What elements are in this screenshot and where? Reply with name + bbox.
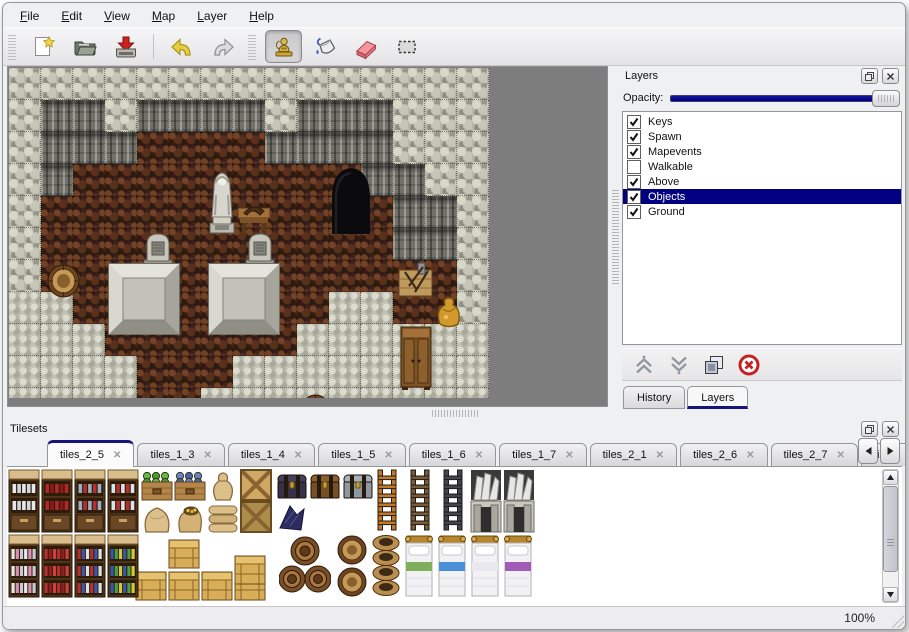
map-tile[interactable] [9, 228, 41, 260]
map-tile[interactable] [41, 324, 73, 356]
produce-tile[interactable] [141, 469, 173, 504]
layer-row-mapevents[interactable]: Mapevents [623, 144, 901, 159]
wardrobe-object[interactable] [399, 325, 433, 391]
map-tile[interactable] [457, 260, 489, 292]
scroll-up-button[interactable] [883, 470, 898, 485]
map-tile[interactable] [457, 388, 489, 398]
map-tile[interactable] [169, 68, 201, 100]
toolbar [3, 27, 905, 66]
redo-button[interactable] [204, 30, 241, 63]
arrow-left-icon [864, 446, 873, 456]
map-tile[interactable] [41, 132, 73, 164]
close-panel-button[interactable] [882, 421, 899, 437]
map-tile[interactable] [41, 228, 73, 260]
crate-with-tools [397, 260, 434, 298]
scroll-thumb[interactable] [883, 486, 898, 572]
cabinet-tile[interactable] [74, 469, 106, 536]
cabinet-tile [41, 469, 73, 533]
map-tile[interactable] [169, 132, 201, 164]
tab-close-icon[interactable]: ✕ [384, 450, 392, 461]
map-canvas[interactable] [9, 68, 490, 398]
cabinet-tile[interactable] [107, 469, 139, 536]
bed-tile [403, 534, 435, 598]
map-tile[interactable] [297, 356, 329, 388]
bed-tile[interactable] [502, 534, 534, 601]
map-tile[interactable] [329, 68, 361, 100]
map-tile[interactable] [233, 132, 265, 164]
tileset-tab-tiles_2_7[interactable]: tiles_2_7✕ [771, 443, 858, 466]
tab-label: tiles_1_7 [512, 449, 556, 461]
tab-close-icon[interactable]: ✕ [746, 450, 754, 461]
map-tile[interactable] [265, 388, 297, 398]
gate-tile[interactable] [470, 469, 502, 536]
map-tile[interactable] [9, 68, 41, 100]
map-tile[interactable] [329, 132, 361, 164]
tileset-tab-tiles_1_6[interactable]: tiles_1_6✕ [409, 443, 496, 466]
map-tile[interactable] [73, 196, 105, 228]
crate-tile [168, 569, 200, 601]
map-tile[interactable] [201, 356, 233, 388]
check-icon [628, 131, 640, 143]
map-tile[interactable] [73, 132, 105, 164]
map-tile[interactable] [73, 164, 105, 196]
bookshelf-tile [107, 534, 139, 598]
map-tile[interactable] [41, 388, 73, 398]
check-icon [628, 176, 640, 188]
arrow-right-icon [886, 446, 895, 456]
map-tile[interactable] [329, 388, 361, 398]
map-tile[interactable] [73, 228, 105, 260]
map-tile[interactable] [361, 324, 393, 356]
eraser-button[interactable] [347, 30, 384, 63]
undo-icon [169, 34, 195, 60]
tab-label: Layers [701, 392, 734, 404]
menu-map[interactable]: Map [141, 5, 186, 26]
shelf-tile[interactable] [107, 534, 139, 601]
map-tile[interactable] [233, 68, 265, 100]
map-tile[interactable] [265, 68, 297, 100]
map-tile[interactable] [137, 100, 169, 132]
bed-tile[interactable] [403, 534, 435, 601]
map-tile[interactable] [265, 356, 297, 388]
produce-crate-tile [141, 469, 173, 501]
layer-checkbox[interactable] [627, 145, 641, 159]
map-tile[interactable] [425, 228, 457, 260]
float-icon [864, 71, 875, 82]
cave-object[interactable] [329, 164, 373, 234]
map-viewport[interactable] [7, 66, 608, 407]
tab-close-icon[interactable]: ✕ [837, 450, 845, 461]
map-tile[interactable] [297, 132, 329, 164]
produce-crate-tile [174, 469, 206, 501]
bed-tile [436, 534, 468, 598]
map-tile[interactable] [73, 356, 105, 388]
cabinet-tile [107, 469, 139, 533]
tileset-scrollbar[interactable] [882, 469, 899, 603]
map-tile[interactable] [361, 132, 393, 164]
x-crate-tile [240, 469, 272, 501]
fill-button[interactable] [306, 30, 343, 63]
opacity-slider[interactable] [670, 89, 900, 106]
new-file-button[interactable] [25, 30, 62, 63]
map-tile[interactable] [457, 100, 489, 132]
opacity-slider-handle[interactable] [872, 90, 900, 107]
stone-gate-tile [503, 469, 535, 533]
tileset-tab-tiles_1_4[interactable]: tiles_1_4✕ [228, 443, 315, 466]
map-tile[interactable] [201, 132, 233, 164]
layer-row-keys[interactable]: Keys [623, 114, 901, 129]
map-tile[interactable] [425, 196, 457, 228]
sackpile-tile[interactable] [207, 501, 239, 536]
map-tile[interactable] [105, 132, 137, 164]
map-tile[interactable] [393, 132, 425, 164]
map-tile[interactable] [105, 356, 137, 388]
menu-layer[interactable]: Layer [186, 5, 238, 26]
tab-close-icon[interactable]: ✕ [656, 450, 664, 461]
ladder-tile[interactable] [437, 469, 469, 534]
map-tile[interactable] [425, 68, 457, 100]
barreltop-object[interactable] [300, 394, 331, 398]
map-tile[interactable] [73, 324, 105, 356]
open-button[interactable] [66, 30, 103, 63]
cabinet-tile[interactable] [8, 469, 40, 536]
ladder-tile [404, 469, 436, 531]
layer-checkbox[interactable] [627, 160, 641, 174]
crate-tile [135, 569, 167, 601]
crate-tile[interactable] [168, 537, 200, 572]
tab-close-icon[interactable]: ✕ [565, 450, 573, 461]
layer-row-ground[interactable]: Ground [623, 204, 901, 219]
tab-close-icon[interactable]: ✕ [294, 450, 302, 461]
layer-row-spawn[interactable]: Spawn [623, 129, 901, 144]
opacity-label: Opacity: [623, 92, 663, 104]
barrel [47, 264, 80, 298]
save-button[interactable] [107, 30, 144, 63]
map-tile[interactable] [297, 260, 329, 292]
tileset-tab-tiles_1_5[interactable]: tiles_1_5✕ [318, 443, 405, 466]
tileset-tab-tiles_1_7[interactable]: tiles_1_7✕ [499, 443, 586, 466]
map-tile[interactable] [137, 68, 169, 100]
map-tile[interactable] [265, 132, 297, 164]
undo-button[interactable] [163, 30, 200, 63]
map-tile[interactable] [297, 292, 329, 324]
tombstone-object[interactable] [141, 230, 175, 266]
resize-grip[interactable] [887, 611, 904, 628]
stone-platform [108, 263, 180, 335]
map-tile[interactable] [41, 164, 73, 196]
tab-close-icon[interactable]: ✕ [113, 450, 121, 461]
barreltop-tile[interactable] [337, 535, 367, 568]
tab-label: History [637, 392, 671, 404]
map-tile[interactable] [361, 100, 393, 132]
save-icon [113, 34, 139, 60]
map-tile[interactable] [265, 100, 297, 132]
map-tile[interactable] [233, 356, 265, 388]
map-tile[interactable] [9, 132, 41, 164]
map-tile[interactable] [137, 164, 169, 196]
toolbar-drag-handle[interactable] [8, 33, 16, 60]
map-tile[interactable] [105, 388, 137, 398]
map-tile[interactable] [105, 164, 137, 196]
duplicate-layer-button[interactable] [701, 352, 727, 378]
fill-icon [312, 34, 338, 60]
scroll-tabs-right-button[interactable] [880, 438, 900, 464]
delete-layer-icon [737, 353, 761, 377]
map-tile[interactable] [393, 164, 425, 196]
map-tile[interactable] [169, 100, 201, 132]
sackbig-tile[interactable] [141, 501, 173, 536]
barreltop-object[interactable] [47, 264, 80, 298]
map-tile[interactable] [457, 164, 489, 196]
chest-tile [309, 469, 341, 501]
redo-icon [210, 34, 236, 60]
tab-label: tiles_2_5 [60, 449, 104, 461]
new-file-icon [31, 34, 57, 60]
layer-checkbox[interactable] [627, 115, 641, 129]
delete-layer-button[interactable] [736, 352, 762, 378]
eraser-icon [353, 34, 379, 60]
select-button[interactable] [388, 30, 425, 63]
float-panel-button[interactable] [861, 421, 878, 437]
crate-tile[interactable] [135, 569, 167, 604]
map-tile[interactable] [457, 196, 489, 228]
barrel-stack-tile [279, 534, 331, 596]
layer-name: Keys [648, 116, 672, 128]
tombstone [243, 230, 277, 266]
layer-checkbox[interactable] [627, 130, 641, 144]
chest-tile [342, 469, 374, 501]
bookshelf-tile [8, 534, 40, 598]
menu-view[interactable]: View [93, 5, 141, 26]
pots-tile[interactable] [371, 534, 401, 600]
map-tile[interactable] [425, 100, 457, 132]
map-tile[interactable] [41, 100, 73, 132]
map-tile[interactable] [9, 292, 41, 324]
map-tile[interactable] [233, 388, 265, 398]
cabinet-tile [8, 469, 40, 533]
sack-tile[interactable] [207, 469, 239, 504]
chest-tile[interactable] [276, 469, 308, 504]
map-tile[interactable] [201, 68, 233, 100]
map-tile[interactable] [169, 164, 201, 196]
cratetools-object[interactable] [397, 260, 434, 298]
menu-file[interactable]: File [9, 5, 50, 26]
tab-close-icon[interactable]: ✕ [475, 450, 483, 461]
tileset-tab-tiles_1_3[interactable]: tiles_1_3✕ [137, 443, 224, 466]
bookshelf-tile [74, 534, 106, 598]
tab-layers[interactable]: Layers [687, 386, 748, 409]
map-tile[interactable] [105, 228, 137, 260]
produce-tile[interactable] [174, 469, 206, 504]
map-tile[interactable] [393, 68, 425, 100]
map-tile[interactable] [105, 68, 137, 100]
map-tile[interactable] [41, 68, 73, 100]
scroll-tabs-left-button[interactable] [858, 438, 878, 464]
map-tile[interactable] [457, 132, 489, 164]
map-tile[interactable] [393, 100, 425, 132]
duplicate-layer-icon [702, 353, 726, 377]
zoom-level: 100% [844, 611, 875, 625]
tilesets-panel-header: Tilesets [7, 419, 902, 439]
map-tile[interactable] [361, 388, 393, 398]
check-icon [628, 116, 640, 128]
map-tile[interactable] [201, 388, 233, 398]
map-tile[interactable] [233, 100, 265, 132]
map-tile[interactable] [329, 356, 361, 388]
arrow-down-icon [886, 590, 895, 599]
map-tile[interactable] [137, 356, 169, 388]
crate-tile [168, 537, 200, 569]
tab-history[interactable]: History [623, 386, 685, 409]
debris-tile[interactable] [276, 501, 308, 536]
layer-name: Ground [648, 206, 685, 218]
cratex-tile[interactable] [240, 469, 272, 504]
map-tile[interactable] [329, 292, 361, 324]
menu-edit[interactable]: Edit [50, 5, 93, 26]
layer-checkbox[interactable] [627, 190, 641, 204]
chest-tile[interactable] [309, 469, 341, 504]
sack-pile-tile [207, 501, 239, 533]
gate-tile[interactable] [503, 469, 535, 536]
tab-label: tiles_1_3 [150, 449, 194, 461]
map-tile[interactable] [9, 164, 41, 196]
crate-tile[interactable] [234, 553, 266, 588]
map-tile[interactable] [361, 356, 393, 388]
vertical-splitter[interactable] [608, 66, 622, 407]
map-tile[interactable] [361, 68, 393, 100]
map-tile[interactable] [41, 356, 73, 388]
tilesets-panel-title: Tilesets [10, 423, 48, 435]
barrel [300, 394, 331, 398]
cabinet-tile[interactable] [41, 469, 73, 536]
map-tile[interactable] [201, 100, 233, 132]
close-icon [886, 425, 895, 434]
app-window: FileEditViewMapLayerHelp Layers Opacity: [2, 2, 906, 630]
map-tile[interactable] [297, 68, 329, 100]
scroll-down-button[interactable] [883, 587, 898, 602]
close-panel-button[interactable] [882, 68, 899, 84]
map-tile[interactable] [297, 196, 329, 228]
map-tile[interactable] [169, 196, 201, 228]
check-icon [628, 206, 640, 218]
shelf-tile[interactable] [74, 534, 106, 601]
map-tile[interactable] [73, 100, 105, 132]
cabinet-tile [74, 469, 106, 533]
map-tile[interactable] [137, 196, 169, 228]
toolbar-drag-handle[interactable] [248, 33, 256, 60]
map-tile[interactable] [457, 228, 489, 260]
map-tile[interactable] [105, 196, 137, 228]
map-tile[interactable] [361, 292, 393, 324]
map-tile[interactable] [9, 356, 41, 388]
tab-label: tiles_2_1 [603, 449, 647, 461]
tileset-tab-tiles_2_1[interactable]: tiles_2_1✕ [590, 443, 677, 466]
map-tile[interactable] [169, 388, 201, 398]
map-tile[interactable] [9, 388, 41, 398]
tab-label: tiles_1_5 [331, 449, 375, 461]
map-tile[interactable] [297, 100, 329, 132]
tombstone-object[interactable] [243, 230, 277, 266]
tileset-tab-tiles_2_5[interactable]: tiles_2_5✕ [47, 440, 134, 467]
float-panel-button[interactable] [861, 68, 878, 84]
tileset-content[interactable] [7, 467, 902, 607]
layer-row-objects[interactable]: Objects [623, 189, 901, 204]
map-tile[interactable] [9, 100, 41, 132]
map-tile[interactable] [9, 260, 41, 292]
map-tile[interactable] [297, 164, 329, 196]
map-tile[interactable] [457, 356, 489, 388]
map-tile[interactable] [169, 356, 201, 388]
layer-checkbox[interactable] [627, 175, 641, 189]
map-tile[interactable] [393, 196, 425, 228]
map-tile[interactable] [9, 324, 41, 356]
barreltop-tile[interactable] [337, 567, 367, 600]
layer-row-walkable[interactable]: Walkable [623, 159, 901, 174]
bed-tile[interactable] [436, 534, 468, 601]
status-bar: 100% [3, 606, 905, 629]
barrels-tile[interactable] [279, 534, 331, 599]
menu-help[interactable]: Help [238, 5, 285, 26]
tab-label: tiles_1_4 [241, 449, 285, 461]
bed-tile[interactable] [469, 534, 501, 601]
crate-tile[interactable] [201, 569, 233, 604]
cratex-tile[interactable] [240, 501, 272, 536]
map-tile[interactable] [457, 324, 489, 356]
map-tile[interactable] [297, 228, 329, 260]
x-crate-tile [240, 501, 272, 533]
chest-tile [276, 469, 308, 501]
ladder-tile[interactable] [371, 469, 403, 534]
sackgold-tile[interactable] [174, 501, 206, 536]
map-tile[interactable] [105, 100, 137, 132]
map-tile[interactable] [73, 388, 105, 398]
pot-stack-tile [371, 534, 401, 597]
layer-actions-bar [622, 348, 902, 381]
map-tile[interactable] [9, 196, 41, 228]
map-tile[interactable] [329, 100, 361, 132]
map-tile[interactable] [265, 164, 297, 196]
map-tile[interactable] [457, 68, 489, 100]
raise-layer-button[interactable] [631, 352, 657, 378]
shelf-tile[interactable] [8, 534, 40, 601]
goldbag-object[interactable] [433, 294, 464, 328]
platform-object[interactable] [108, 263, 180, 335]
map-tile[interactable] [425, 164, 457, 196]
tileset-tab-tiles_2_6[interactable]: tiles_2_6✕ [680, 443, 767, 466]
map-tile[interactable] [41, 196, 73, 228]
chest-tile[interactable] [342, 469, 374, 504]
lower-layer-button[interactable] [666, 352, 692, 378]
map-tile[interactable] [425, 132, 457, 164]
map-tile[interactable] [297, 324, 329, 356]
map-tile[interactable] [393, 228, 425, 260]
map-tile[interactable] [361, 260, 393, 292]
stamp-button[interactable] [265, 30, 302, 63]
map-tile[interactable] [137, 132, 169, 164]
ladder-tile[interactable] [404, 469, 436, 534]
platform-object[interactable] [208, 263, 280, 335]
bed-tile [469, 534, 501, 598]
layer-checkbox[interactable] [627, 205, 641, 219]
tab-close-icon[interactable]: ✕ [203, 450, 211, 461]
map-tile[interactable] [329, 324, 361, 356]
crate-tile[interactable] [168, 569, 200, 604]
map-tile[interactable] [329, 260, 361, 292]
map-tile[interactable] [73, 68, 105, 100]
map-tile[interactable] [137, 388, 169, 398]
layer-row-above[interactable]: Above [623, 174, 901, 189]
shelf-tile[interactable] [41, 534, 73, 601]
